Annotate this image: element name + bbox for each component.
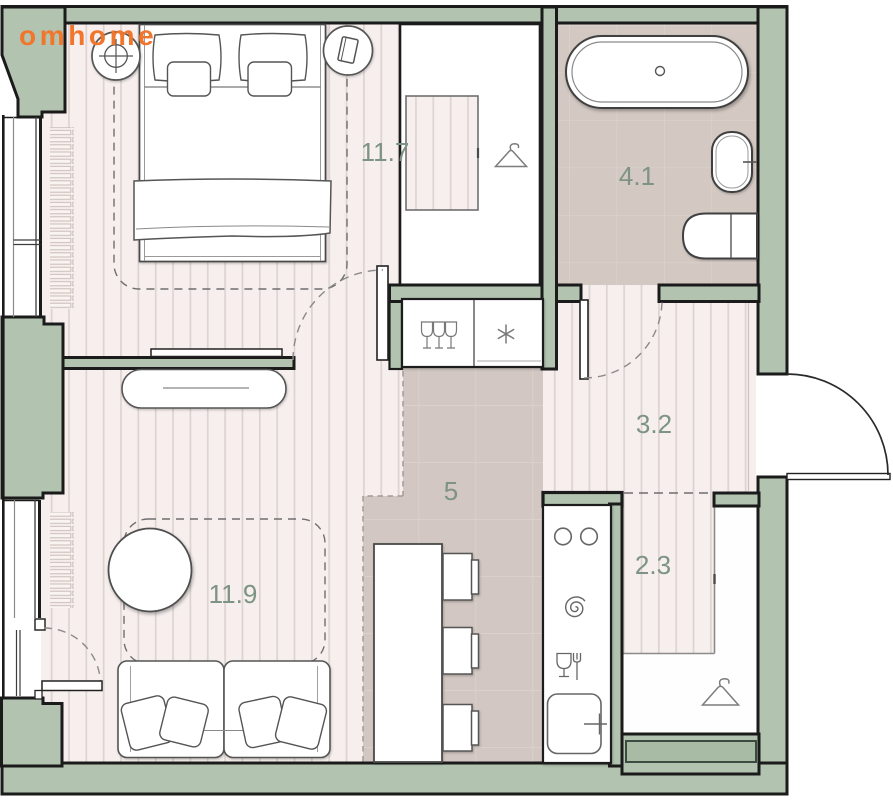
svg-text:11.7: 11.7 [361,137,410,167]
svg-text:omhome: omhome [19,20,157,51]
svg-text:2.3: 2.3 [635,550,671,580]
svg-text:4.1: 4.1 [619,161,655,191]
svg-text:11.9: 11.9 [209,579,258,609]
svg-text:3.2: 3.2 [636,409,672,439]
svg-text:5: 5 [444,476,458,506]
